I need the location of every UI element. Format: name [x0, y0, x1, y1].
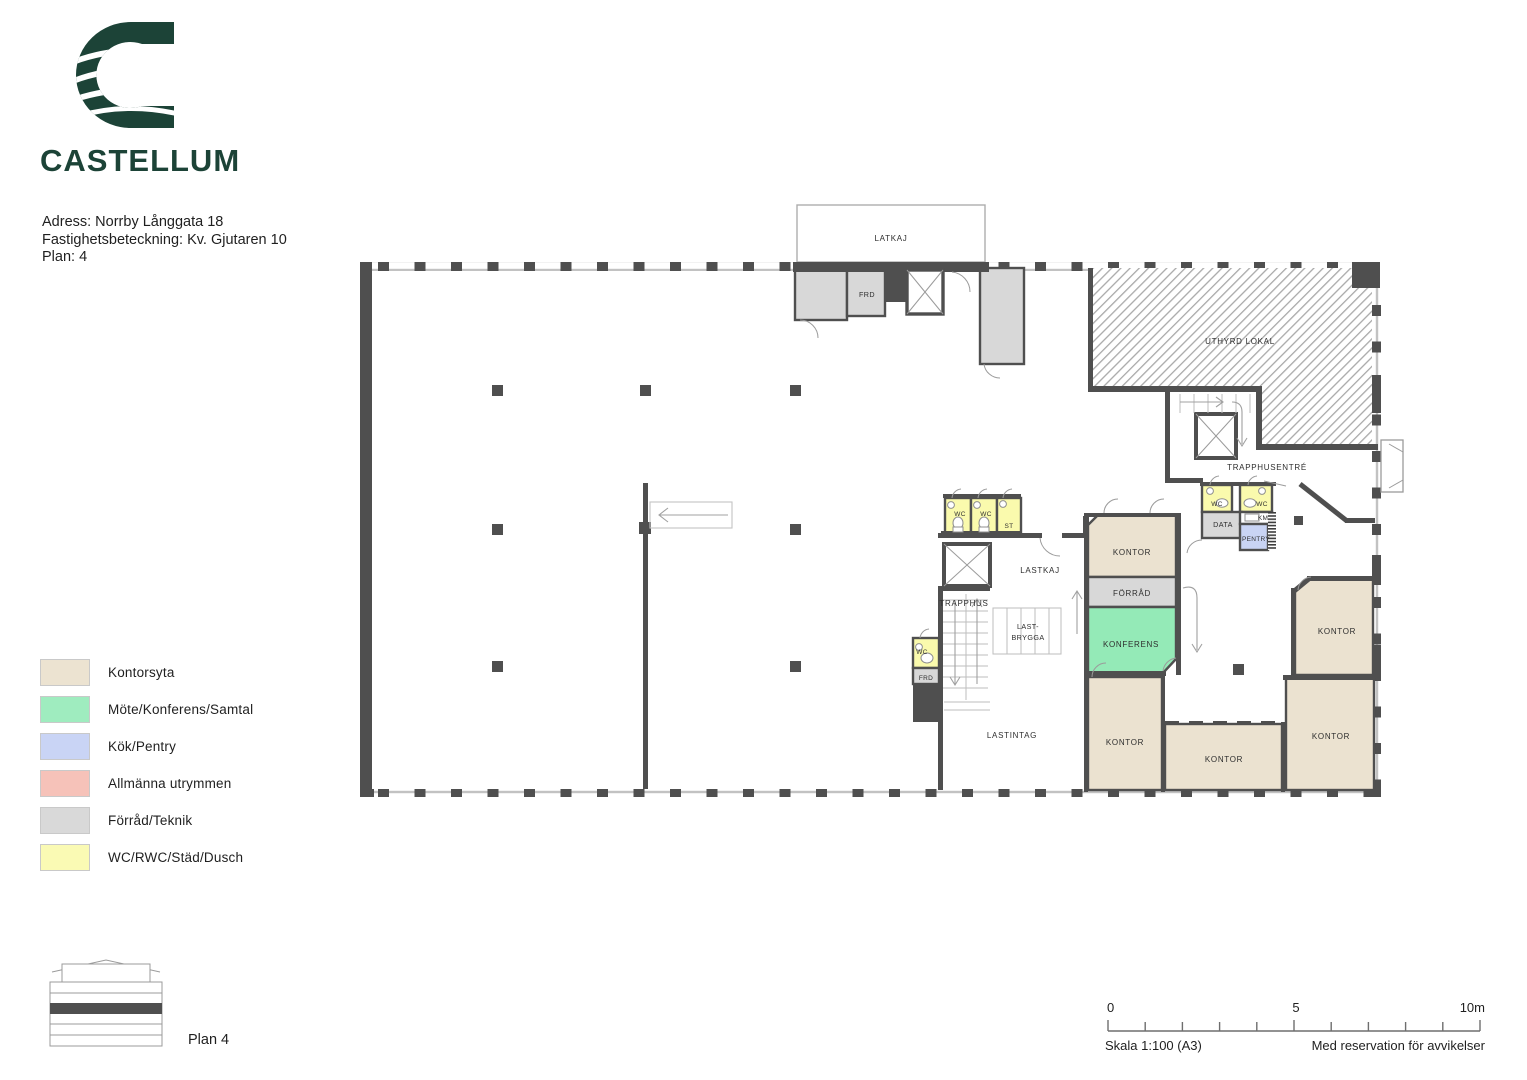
- label-latkaj: LATKAJ: [875, 234, 908, 243]
- active-floor-band: [50, 1003, 162, 1014]
- building-section-icon: [40, 950, 172, 1050]
- legend-swatch-kontorsyta: [40, 659, 90, 686]
- legend-swatch-allmanna: [40, 770, 90, 797]
- label-trapphusentre: TRAPPHUSENTRÉ: [1227, 463, 1307, 472]
- plan-name: Plan 4: [188, 1032, 229, 1048]
- label-pentry: PENTRY: [1242, 536, 1270, 543]
- legend-swatch-wc: [40, 844, 90, 871]
- label-lastintag: LASTINTAG: [987, 731, 1037, 740]
- castellum-logo-icon: [76, 22, 300, 133]
- label-kontor-5: KONTOR: [1318, 627, 1356, 636]
- label-kontor-2: KONTOR: [1106, 738, 1144, 747]
- corridor-arrow-down: [1183, 587, 1202, 652]
- legend-label: Möte/Konferens/Samtal: [108, 702, 253, 717]
- legend-label: Förråd/Teknik: [108, 813, 192, 828]
- legend-label: Allmänna utrymmen: [108, 776, 231, 791]
- stairs-lastbrygga: [993, 608, 1061, 654]
- brand-block: CASTELLUM: [40, 22, 300, 179]
- legend-item-konferens: Möte/Konferens/Samtal: [40, 696, 253, 723]
- label-kontor-3: KONTOR: [1205, 755, 1243, 764]
- label-kontor-1: KONTOR: [1113, 548, 1151, 557]
- shaft: [1268, 512, 1276, 550]
- stairs-trapphus: [943, 594, 988, 700]
- disclaimer-text: Med reservation för avvikelser: [1312, 1038, 1486, 1053]
- plan-line: Plan: 4: [42, 249, 287, 267]
- scale-tick-10m: 10m: [1460, 1000, 1485, 1015]
- label-wc-4: WC: [1256, 501, 1267, 508]
- legend-item-forrad: Förråd/Teknik: [40, 807, 253, 834]
- legend-item-kontorsyta: Kontorsyta: [40, 659, 253, 686]
- stairs-entry: [1180, 394, 1250, 413]
- scale-tick-5: 5: [1292, 1000, 1299, 1015]
- label-kontor-4: KONTOR: [1312, 732, 1350, 741]
- ramp-arrow: [650, 502, 732, 528]
- scale-text: Skala 1:100 (A3): [1105, 1038, 1202, 1053]
- pillars: [492, 385, 1303, 675]
- label-frd-left: FRD: [919, 675, 933, 682]
- label-frd-top: FRD: [859, 290, 875, 299]
- stairs-exit: [944, 702, 990, 710]
- legend-label: WC/RWC/Städ/Dusch: [108, 850, 243, 865]
- elevator-icon-top: [907, 270, 943, 314]
- legend: Kontorsyta Möte/Konferens/Samtal Kök/Pen…: [40, 659, 253, 881]
- wall-diagonal-entry: [1300, 484, 1347, 521]
- label-trapphus: TRAPPHUS: [939, 599, 988, 608]
- legend-item-allmanna: Allmänna utrymmen: [40, 770, 253, 797]
- legend-swatch-pentry: [40, 733, 90, 760]
- label-forrad: FÖRRÅD: [1113, 589, 1151, 598]
- entrance-bay: [1381, 440, 1403, 492]
- label-uthyrd-lokal: UTHYRD LOKAL: [1205, 337, 1275, 346]
- label-wc-3: WC: [1211, 501, 1222, 508]
- label-wc-1: WC: [954, 511, 965, 518]
- legend-swatch-konferens: [40, 696, 90, 723]
- scale-tick-0: 0: [1107, 1000, 1114, 1015]
- label-st: ST: [1005, 523, 1014, 530]
- label-lastbrygga-2: BRYGGA: [1011, 633, 1044, 642]
- property-line: Fastighetsbeteckning: Kv. Gjutaren 10: [42, 232, 287, 250]
- scale-ruler: [1108, 1020, 1480, 1031]
- room-kontor-1: [1088, 515, 1176, 577]
- label-wc-2: WC: [980, 511, 991, 518]
- legend-swatch-forrad: [40, 807, 90, 834]
- scale-bar: 0 5 10m Skala 1:100 (A3) Med reservation…: [1103, 998, 1489, 1061]
- legend-label: Kontorsyta: [108, 665, 175, 680]
- label-wc-left: WC: [916, 649, 927, 656]
- label-lastkaj: LASTKAJ: [1020, 566, 1060, 575]
- elevator-icon-lastkaj: [944, 544, 990, 586]
- floor-plan: LATKAJ FRD UTHYRD LOKAL TRAPPHUSENTRÉ WC…: [355, 195, 1415, 810]
- floor-indicator: Plan 4: [40, 950, 229, 1050]
- corridor-arrow-up: [1072, 591, 1082, 634]
- label-lastbrygga-1: LAST-: [1017, 622, 1039, 631]
- legend-item-wc: WC/RWC/Städ/Dusch: [40, 844, 253, 871]
- elevator-icon-entry: [1196, 414, 1236, 458]
- room-teknik-2: [980, 268, 1024, 364]
- legend-item-pentry: Kök/Pentry: [40, 733, 253, 760]
- room-teknik: [795, 270, 847, 320]
- address-line: Adress: Norrby Långgata 18: [42, 214, 287, 232]
- brand-wordmark: CASTELLUM: [40, 143, 300, 179]
- document-meta: Adress: Norrby Långgata 18 Fastighetsbet…: [42, 214, 287, 267]
- label-km: KM: [1258, 515, 1268, 522]
- legend-label: Kök/Pentry: [108, 739, 176, 754]
- room-kontor-2: [1088, 677, 1162, 790]
- label-konferens: KONFERENS: [1103, 640, 1159, 649]
- label-data: DATA: [1213, 520, 1233, 529]
